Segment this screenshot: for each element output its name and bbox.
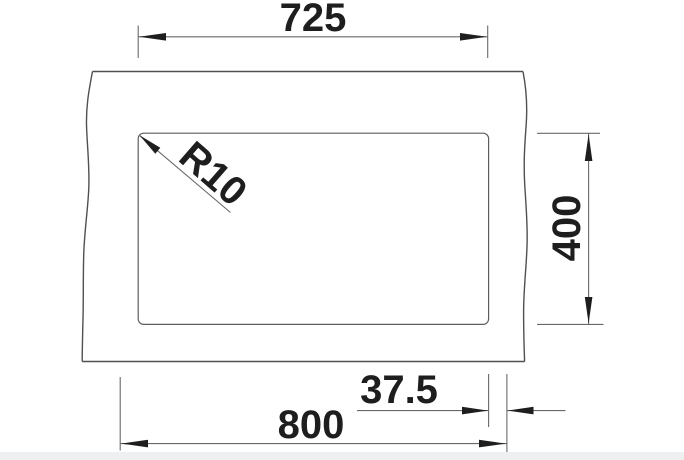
dim-label-overall-width: 800 <box>278 405 345 445</box>
dim-label-bowl-depth: 400 <box>547 195 587 262</box>
footer-bar <box>0 452 684 460</box>
arrow-725-right <box>460 33 487 41</box>
arrow-37-5-right <box>507 407 533 415</box>
arrow-37-5-left <box>462 407 488 415</box>
worktop-left-break-line <box>82 72 92 362</box>
arrow-400-top <box>585 134 593 161</box>
arrow-725-left <box>139 33 166 41</box>
radius-leader-arrow <box>140 135 161 154</box>
worktop-right-break-line <box>523 72 527 362</box>
arrow-800-left <box>121 440 148 448</box>
dim-label-side-offset: 37.5 <box>360 370 438 410</box>
technical-drawing-canvas: 725 400 37.5 800 R10 <box>0 0 684 460</box>
arrow-800-right <box>479 440 506 448</box>
arrow-400-bottom <box>585 297 593 324</box>
worktop-outline <box>82 72 527 362</box>
dim-label-bowl-width: 725 <box>280 0 347 38</box>
